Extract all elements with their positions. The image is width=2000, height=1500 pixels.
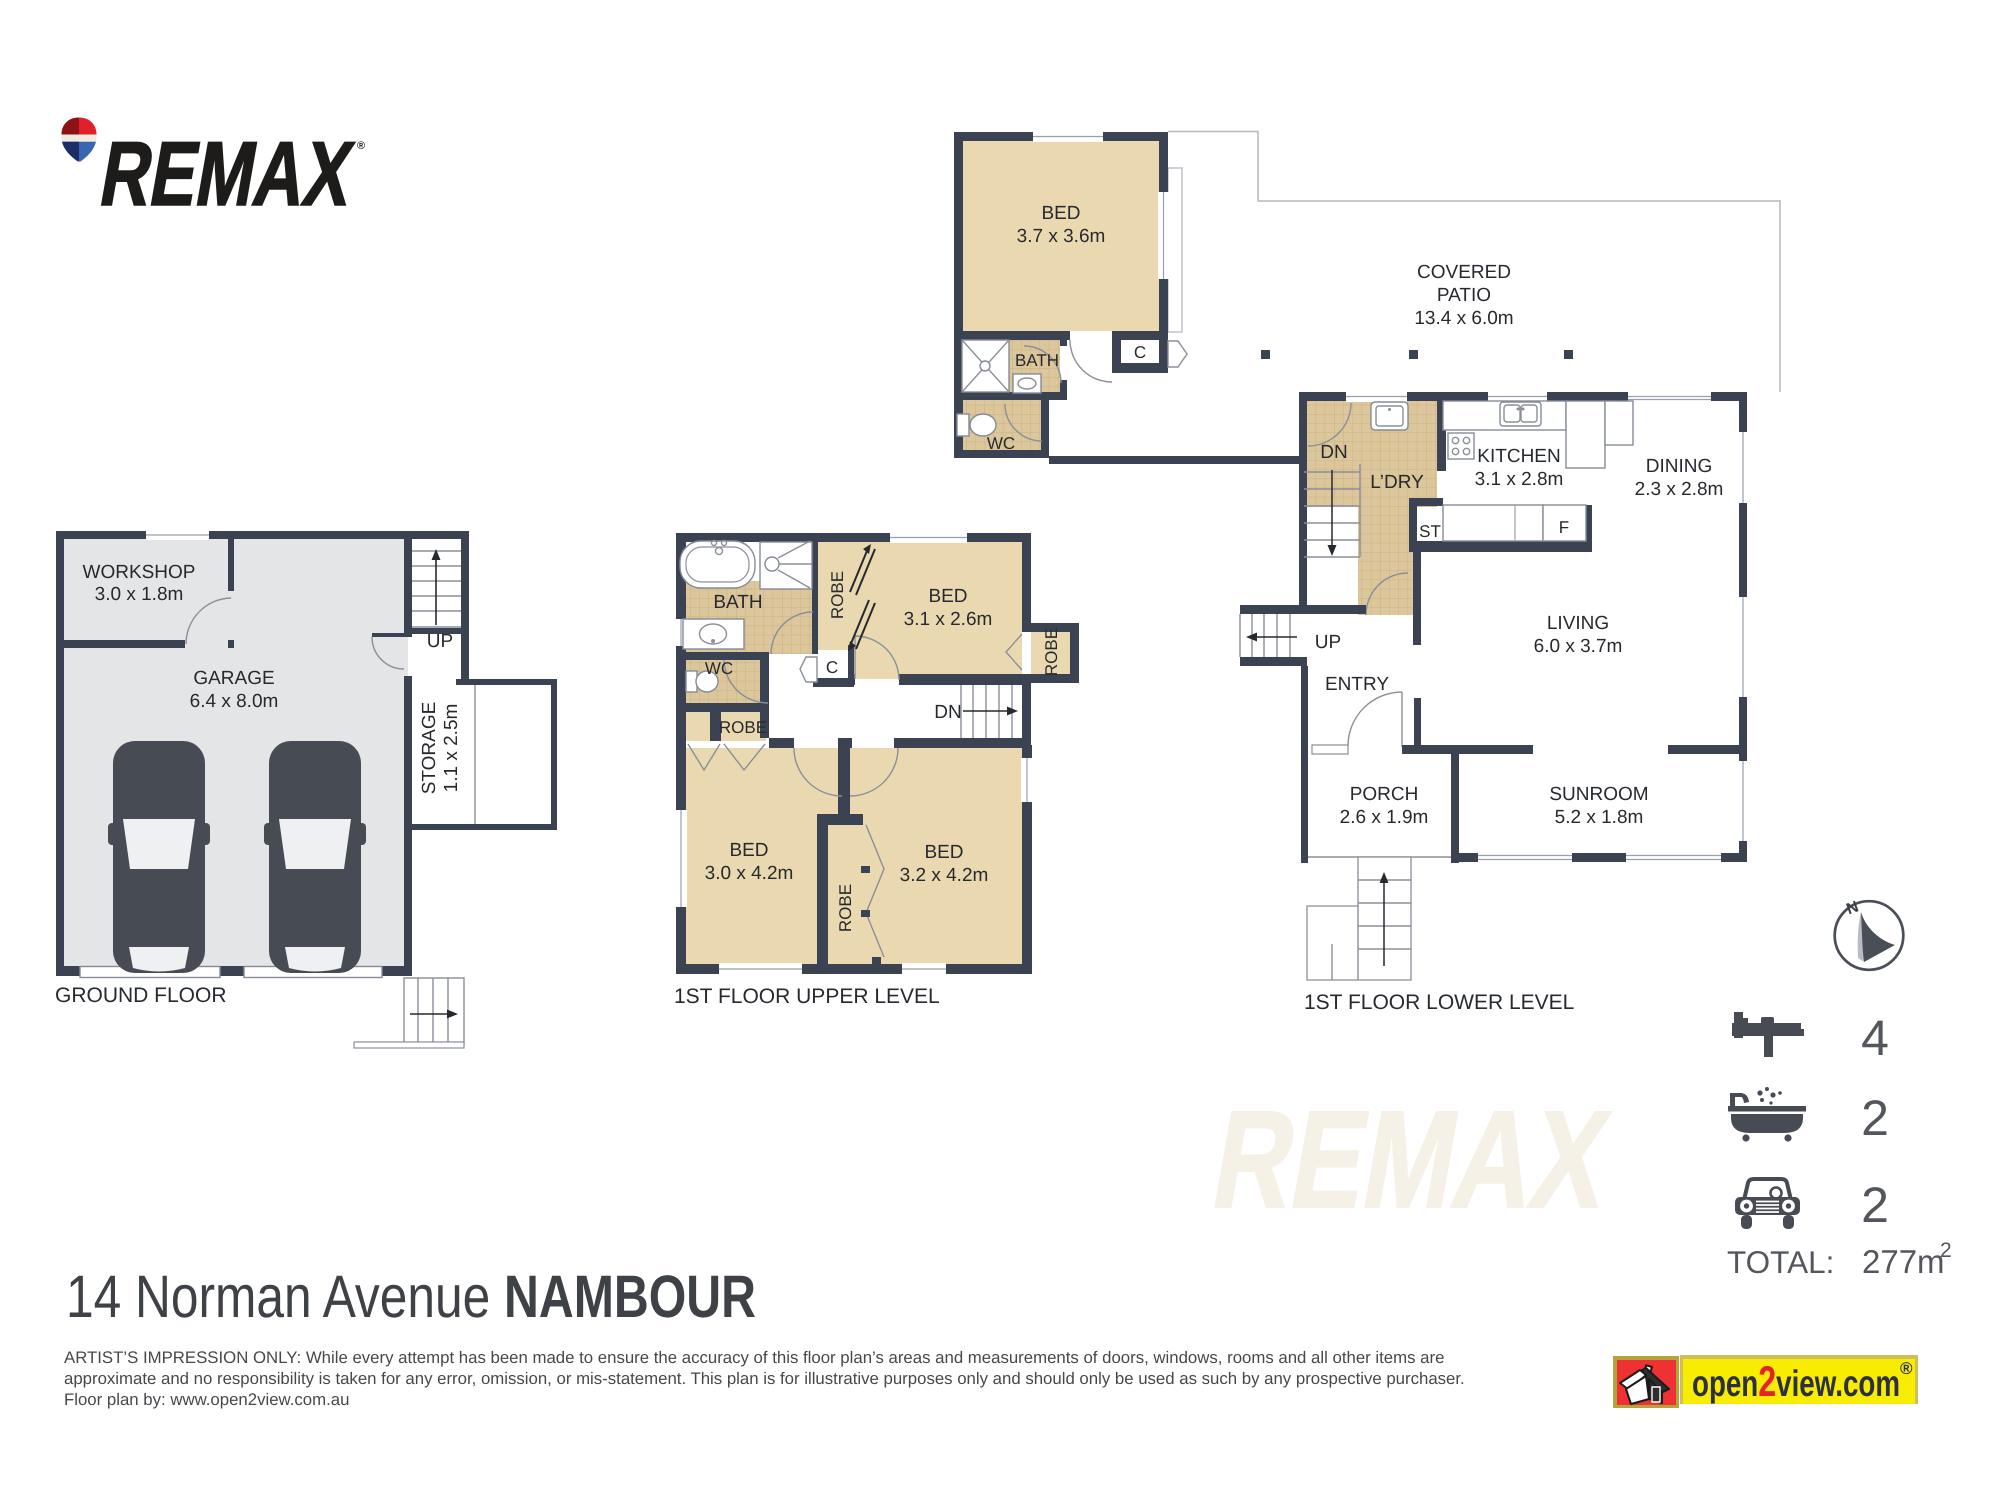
svg-text:C: C bbox=[1134, 343, 1146, 362]
svg-text:BED: BED bbox=[729, 840, 768, 861]
svg-text:1ST FLOOR LOWER LEVEL: 1ST FLOOR LOWER LEVEL bbox=[1304, 991, 1574, 1014]
svg-text:LIVING: LIVING bbox=[1547, 613, 1609, 634]
svg-text:C: C bbox=[826, 658, 838, 677]
svg-text:GROUND FLOOR: GROUND FLOOR bbox=[55, 984, 227, 1007]
svg-text:GARAGE: GARAGE bbox=[193, 668, 274, 689]
svg-text:®: ® bbox=[357, 140, 365, 152]
svg-text:3.1 x 2.8m: 3.1 x 2.8m bbox=[1475, 469, 1564, 490]
svg-text:2: 2 bbox=[1861, 1090, 1889, 1146]
svg-text:2: 2 bbox=[1940, 1239, 1952, 1262]
svg-text:3.2 x 4.2m: 3.2 x 4.2m bbox=[900, 865, 989, 886]
svg-text:BED: BED bbox=[1041, 203, 1080, 224]
svg-text:3.1 x 2.6m: 3.1 x 2.6m bbox=[904, 609, 993, 630]
svg-text:ROBE: ROBE bbox=[1042, 628, 1061, 676]
svg-text:5.2 x 1.8m: 5.2 x 1.8m bbox=[1555, 807, 1644, 828]
svg-text:PORCH: PORCH bbox=[1350, 784, 1419, 805]
svg-text:BATH: BATH bbox=[713, 592, 762, 613]
svg-text:2: 2 bbox=[1861, 1177, 1889, 1233]
svg-text:REMAX: REMAX bbox=[93, 124, 360, 225]
svg-text:DN: DN bbox=[934, 702, 961, 723]
svg-text:ROBE: ROBE bbox=[828, 571, 847, 619]
svg-text:3.7 x 3.6m: 3.7 x 3.6m bbox=[1017, 226, 1106, 247]
svg-text:13.4 x 6.0m: 13.4 x 6.0m bbox=[1414, 308, 1513, 329]
svg-text:REMAX: REMAX bbox=[1203, 1083, 1620, 1237]
svg-text:4: 4 bbox=[1861, 1010, 1889, 1066]
svg-text:F: F bbox=[1559, 518, 1569, 537]
svg-text:3.0 x 1.8m: 3.0 x 1.8m bbox=[95, 584, 184, 605]
svg-text:1ST FLOOR UPPER LEVEL: 1ST FLOOR UPPER LEVEL bbox=[674, 985, 940, 1008]
svg-text:PATIO: PATIO bbox=[1437, 285, 1491, 306]
svg-text:DN: DN bbox=[1320, 442, 1347, 463]
svg-text:WC: WC bbox=[987, 434, 1015, 453]
svg-text:ARTIST’S IMPRESSION ONLY: Whil: ARTIST’S IMPRESSION ONLY: While every at… bbox=[64, 1348, 1444, 1367]
svg-text:6.4 x 8.0m: 6.4 x 8.0m bbox=[190, 691, 279, 712]
svg-text:ENTRY: ENTRY bbox=[1325, 674, 1389, 695]
svg-text:approximate and no responsibil: approximate and no responsibility is tak… bbox=[64, 1369, 1465, 1388]
svg-text:ROBE: ROBE bbox=[719, 718, 767, 737]
svg-text:open2view.com: open2view.com bbox=[1692, 1358, 1900, 1406]
svg-text:WC: WC bbox=[705, 659, 733, 678]
svg-text:6.0 x 3.7m: 6.0 x 3.7m bbox=[1534, 636, 1623, 657]
svg-text:BED: BED bbox=[924, 842, 963, 863]
svg-text:DINING: DINING bbox=[1646, 456, 1713, 477]
svg-text:277m: 277m bbox=[1862, 1243, 1945, 1280]
svg-text:ST: ST bbox=[1419, 522, 1441, 541]
svg-text:BED: BED bbox=[928, 586, 967, 607]
svg-text:3.0 x 4.2m: 3.0 x 4.2m bbox=[705, 863, 794, 884]
svg-text:UP: UP bbox=[427, 631, 453, 652]
svg-text:COVERED: COVERED bbox=[1417, 262, 1511, 283]
svg-text:BATH: BATH bbox=[1015, 351, 1059, 370]
svg-text:L’DRY: L’DRY bbox=[1370, 472, 1424, 493]
svg-text:2.3 x 2.8m: 2.3 x 2.8m bbox=[1635, 479, 1724, 500]
svg-text:14 Norman Avenue NAMBOUR: 14 Norman Avenue NAMBOUR bbox=[66, 1263, 756, 1330]
svg-text:WORKSHOP: WORKSHOP bbox=[83, 562, 196, 583]
svg-text:2.6 x 1.9m: 2.6 x 1.9m bbox=[1340, 807, 1429, 828]
svg-text:®: ® bbox=[1900, 1359, 1913, 1378]
svg-text:UP: UP bbox=[1315, 632, 1341, 653]
svg-text:Floor plan by: www.open2view.c: Floor plan by: www.open2view.com.au bbox=[64, 1390, 349, 1409]
svg-text:KITCHEN: KITCHEN bbox=[1477, 446, 1560, 467]
svg-text:1.1 x 2.5m: 1.1 x 2.5m bbox=[441, 704, 462, 793]
svg-text:STORAGE: STORAGE bbox=[419, 702, 440, 795]
svg-text:TOTAL:: TOTAL: bbox=[1727, 1244, 1834, 1280]
svg-text:SUNROOM: SUNROOM bbox=[1549, 784, 1648, 805]
svg-text:ROBE: ROBE bbox=[836, 884, 855, 932]
